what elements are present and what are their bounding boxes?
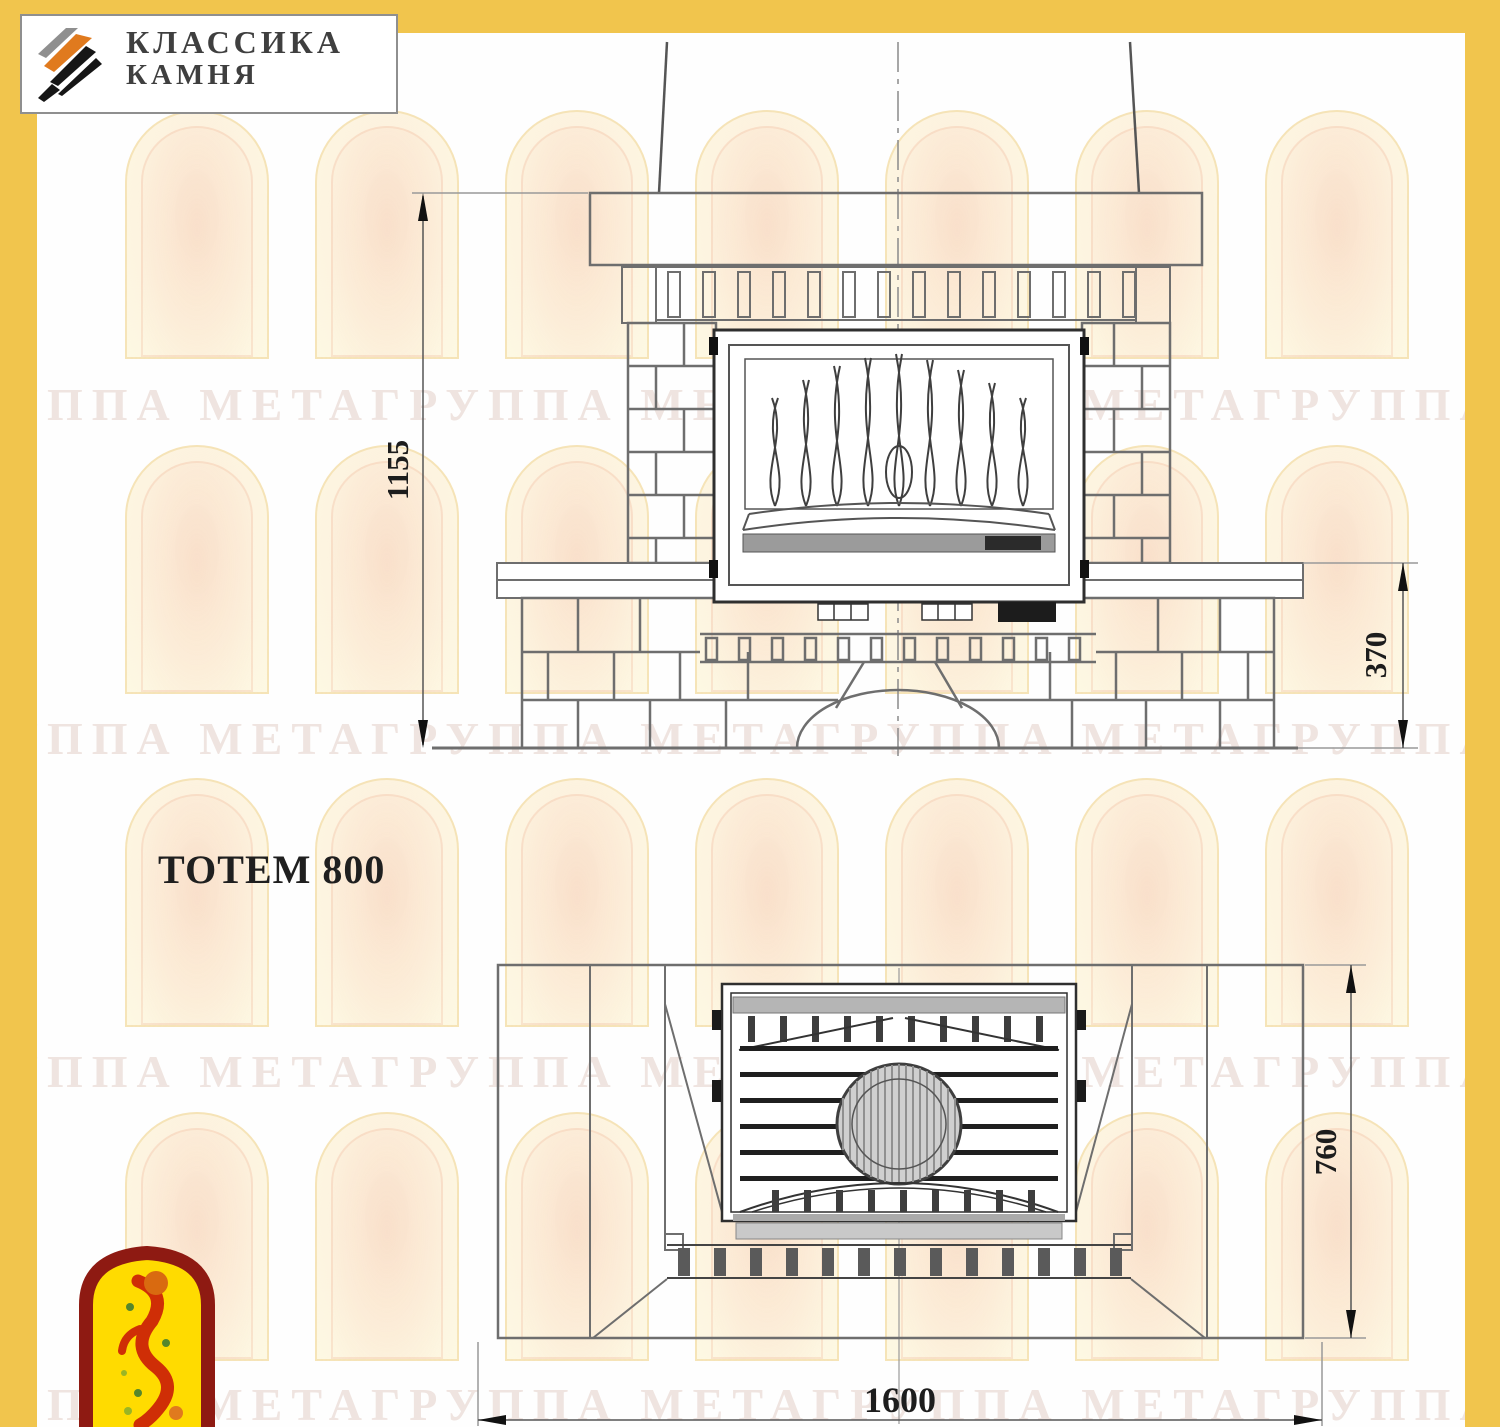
firebox-plan <box>712 984 1086 1239</box>
flue-collar <box>837 1064 961 1184</box>
dim-plan-depth: 760 <box>1305 965 1366 1338</box>
right-brick-column <box>1082 323 1170 563</box>
company-logo: КЛАССИКА КАМНЯ <box>20 14 398 114</box>
plan-view: 760 1600 <box>478 965 1366 1426</box>
dim-front-height: 1155 <box>380 193 588 748</box>
dim-front-height-label: 1155 <box>380 440 415 500</box>
dim-plan-width-label: 1600 <box>864 1380 936 1420</box>
dim-plan-depth-label: 760 <box>1308 1129 1343 1176</box>
company-logo-text: КЛАССИКА КАМНЯ <box>126 26 344 90</box>
page: ГРУППА МЕТАГРУППА МЕТАГРУППА МЕТАГРУППА … <box>0 0 1500 1427</box>
dim-hearth-height: 370 <box>1298 563 1418 748</box>
front-view: 1155 370 <box>380 42 1418 756</box>
dim-hearth-height-label: 370 <box>1358 632 1393 679</box>
plan-front-slats <box>667 1245 1131 1278</box>
company-logo-line1: КЛАССИКА <box>126 26 344 60</box>
logo-stripes-icon <box>34 24 114 104</box>
upper-slat-row <box>622 267 1170 323</box>
technical-drawing-svg: 1155 370 <box>0 0 1500 1427</box>
mantel-shelf <box>590 193 1202 265</box>
left-brick-column <box>628 323 716 563</box>
dim-plan-width: 1600 <box>478 1342 1322 1426</box>
model-title: ТОТЕМ 800 <box>158 846 385 893</box>
corner-arch-logo-icon <box>78 1243 216 1427</box>
firebox-front <box>709 330 1089 622</box>
corner-arch-logo <box>78 1243 216 1427</box>
company-logo-line2: КАМНЯ <box>126 60 344 90</box>
